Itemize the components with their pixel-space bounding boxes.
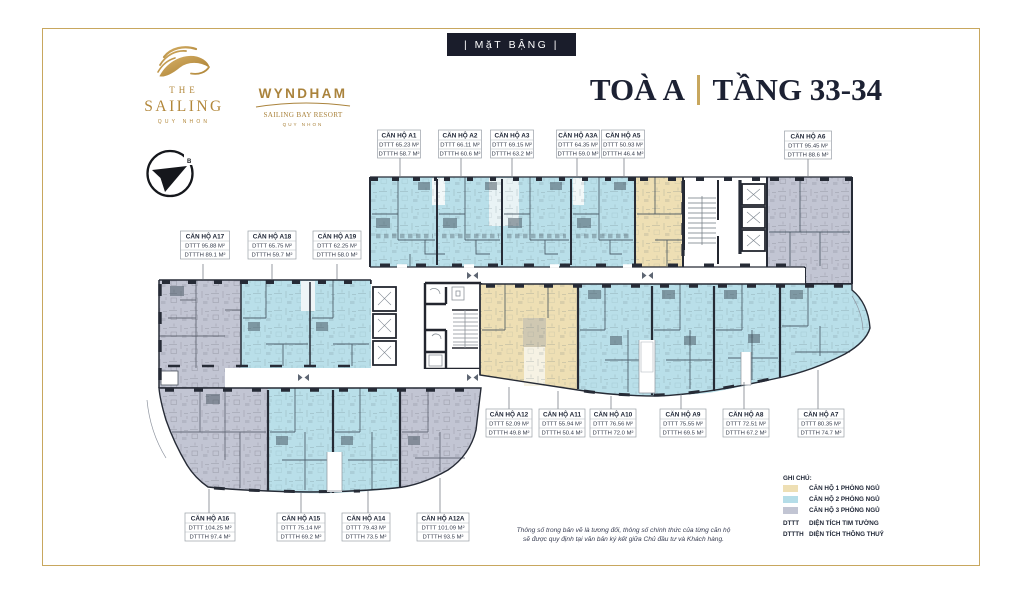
svg-text:DTTT 66.11 M²: DTTT 66.11 M²	[440, 143, 479, 149]
svg-text:DTTTH 46.4 M²: DTTTH 46.4 M²	[603, 152, 644, 158]
svg-text:DTTT 55.94 M²: DTTT 55.94 M²	[542, 422, 582, 428]
svg-text:DTTTH 58.0 M²: DTTTH 58.0 M²	[317, 253, 358, 259]
svg-text:CĂN HỘ A2: CĂN HỘ A2	[443, 131, 478, 140]
svg-text:DTTT 76.56 M²: DTTT 76.56 M²	[593, 422, 633, 428]
svg-text:CĂN HỘ A16: CĂN HỘ A16	[191, 514, 230, 523]
svg-text:DTTT 72.51 M²: DTTT 72.51 M²	[726, 422, 766, 428]
svg-text:DTTTH 69.2 M²: DTTTH 69.2 M²	[281, 535, 322, 541]
svg-text:CĂN HỘ A17: CĂN HỘ A17	[186, 232, 225, 241]
svg-text:CĂN HỘ A5: CĂN HỘ A5	[606, 131, 641, 140]
svg-text:CĂN HỘ A14: CĂN HỘ A14	[347, 514, 386, 523]
svg-text:DTTTH 59.0 M²: DTTTH 59.0 M²	[558, 152, 599, 158]
svg-text:CĂN HỘ A7: CĂN HỘ A7	[804, 410, 839, 419]
svg-text:DTTTH 60.6 M²: DTTTH 60.6 M²	[440, 152, 481, 158]
svg-text:CĂN HỘ A3A: CĂN HỘ A3A	[558, 131, 598, 140]
svg-text:DTTT 64.35 M²: DTTT 64.35 M²	[558, 143, 598, 149]
svg-text:DTTT 50.93 M²: DTTT 50.93 M²	[603, 143, 643, 149]
svg-text:DTTTH 72.0 M²: DTTTH 72.0 M²	[593, 431, 634, 437]
svg-text:CĂN HỘ A18: CĂN HỘ A18	[253, 232, 292, 241]
svg-text:DTTTH 97.4 M²: DTTTH 97.4 M²	[190, 535, 231, 541]
svg-text:CĂN HỘ A9: CĂN HỘ A9	[666, 410, 701, 419]
svg-text:DTTT 104.25 M²: DTTT 104.25 M²	[188, 526, 231, 532]
svg-text:CĂN HỘ A11: CĂN HỘ A11	[543, 410, 582, 419]
svg-text:CĂN HỘ A12: CĂN HỘ A12	[490, 410, 529, 419]
svg-text:CĂN HỘ A1: CĂN HỘ A1	[382, 131, 417, 140]
svg-text:DTTTH 67.2 M²: DTTTH 67.2 M²	[726, 431, 767, 437]
svg-text:CĂN HỘ A6: CĂN HỘ A6	[791, 132, 826, 141]
svg-text:DTTTH 89.1 M²: DTTTH 89.1 M²	[185, 253, 226, 259]
svg-text:DTTT 101.09 M²: DTTT 101.09 M²	[421, 526, 464, 532]
svg-text:DTTT 65.75 M²: DTTT 65.75 M²	[252, 244, 292, 250]
svg-text:DTTT 75.55 M²: DTTT 75.55 M²	[663, 422, 703, 428]
svg-text:CĂN HỘ A15: CĂN HỘ A15	[282, 514, 321, 523]
svg-text:CĂN HỘ A19: CĂN HỘ A19	[318, 232, 357, 241]
svg-text:CĂN HỘ A12A: CĂN HỘ A12A	[421, 514, 464, 523]
svg-text:CĂN HỘ A3: CĂN HỘ A3	[495, 131, 530, 140]
svg-text:DTTTH 50.4 M²: DTTTH 50.4 M²	[542, 431, 583, 437]
svg-text:DTTT 62.25 M²: DTTT 62.25 M²	[317, 244, 357, 250]
svg-text:DTTTH 93.5 M²: DTTTH 93.5 M²	[423, 535, 464, 541]
svg-text:DTTT 52.09 M²: DTTT 52.09 M²	[489, 422, 529, 428]
svg-text:DTTTH 69.5 M²: DTTTH 69.5 M²	[663, 431, 704, 437]
svg-text:DTTT 65.23 M²: DTTT 65.23 M²	[379, 143, 419, 149]
svg-text:DTTT 95.45 M²: DTTT 95.45 M²	[788, 144, 828, 150]
svg-text:CĂN HỘ A10: CĂN HỘ A10	[594, 410, 633, 419]
svg-text:CĂN HỘ A8: CĂN HỘ A8	[729, 410, 764, 419]
svg-text:DTTTH 58.7 M²: DTTTH 58.7 M²	[379, 152, 420, 158]
svg-text:DTTTH 88.6 M²: DTTTH 88.6 M²	[788, 153, 829, 159]
svg-text:DTTTH 59.7 M²: DTTTH 59.7 M²	[252, 253, 293, 259]
svg-text:DTTTH 49.8 M²: DTTTH 49.8 M²	[489, 431, 530, 437]
svg-text:DTTT 95.88 M²: DTTT 95.88 M²	[185, 244, 225, 250]
svg-text:DTTT 79.43 M²: DTTT 79.43 M²	[346, 526, 386, 532]
svg-text:DTTTH 73.5 M²: DTTTH 73.5 M²	[346, 535, 387, 541]
svg-text:DTTT 69.15 M²: DTTT 69.15 M²	[492, 143, 532, 149]
svg-text:DTTT 80.35 M²: DTTT 80.35 M²	[801, 422, 841, 428]
svg-text:DTTT 75.14 M²: DTTT 75.14 M²	[281, 526, 321, 532]
svg-text:DTTTH 74.7 M²: DTTTH 74.7 M²	[801, 431, 842, 437]
svg-text:DTTTH 63.2 M²: DTTTH 63.2 M²	[492, 152, 533, 158]
